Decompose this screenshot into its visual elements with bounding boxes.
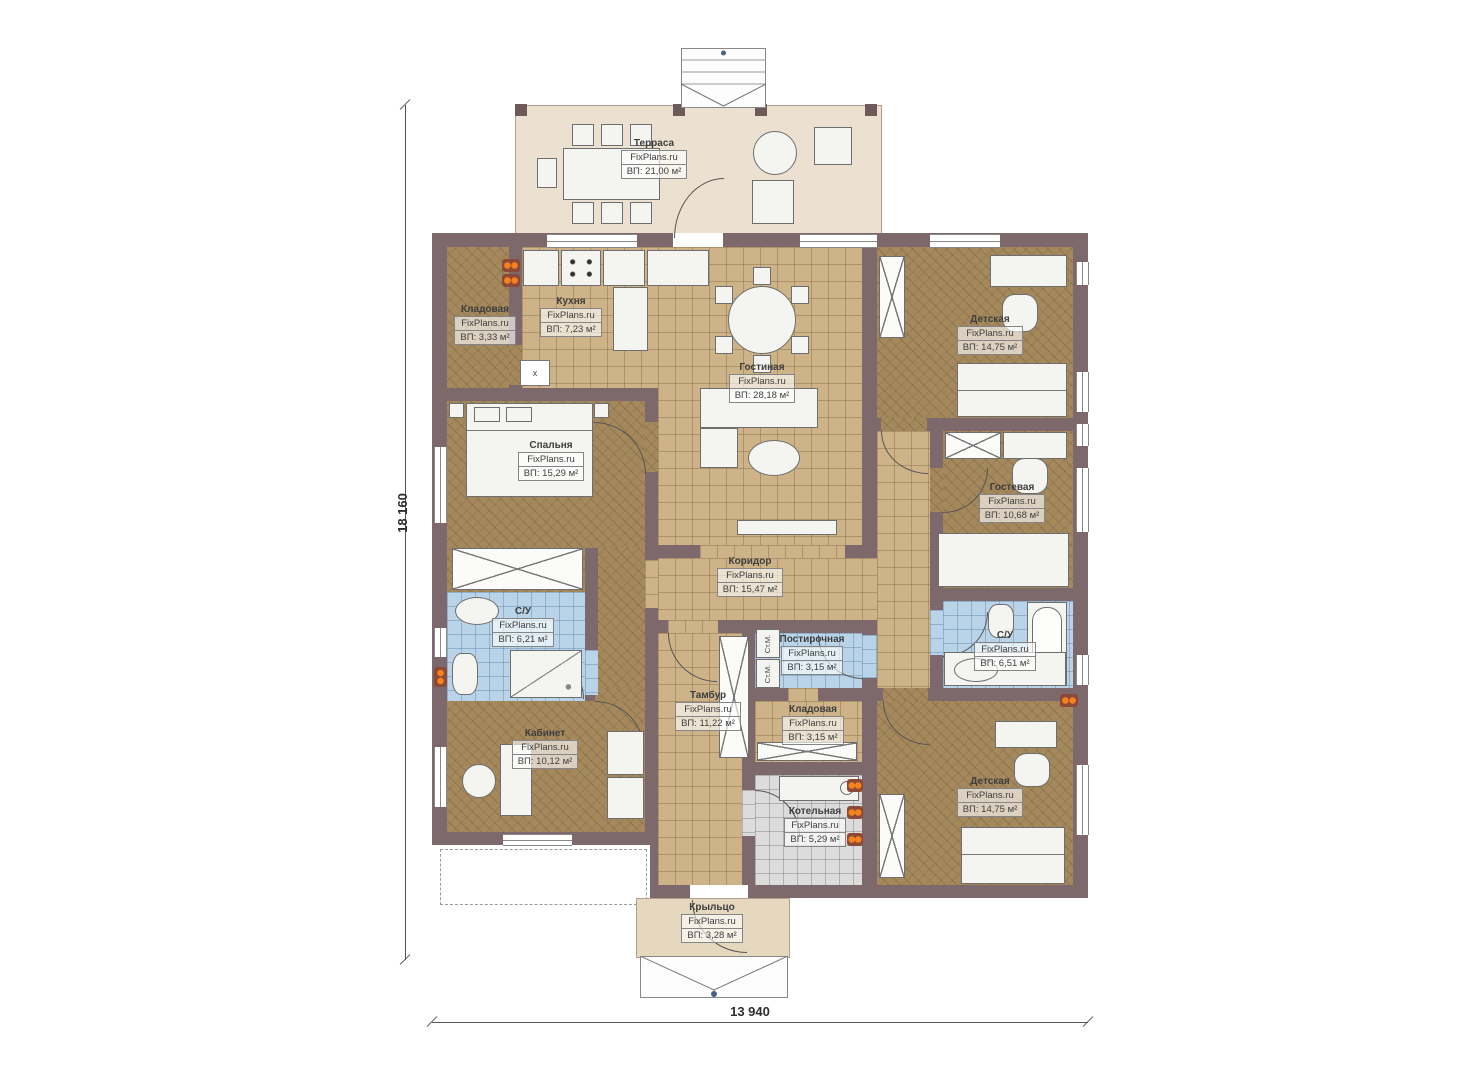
label-guest-room: Гостевая FixPlans.ruВП: 10,68 м² [966, 482, 1058, 523]
terrace-post [865, 104, 877, 116]
wardrobe [452, 548, 583, 590]
opening-vestibule-door [668, 620, 718, 633]
opening-nursery-top-door [881, 418, 927, 431]
room-name: Кабинет [525, 728, 565, 739]
toilet [452, 653, 478, 695]
label-porch: Крыльцо FixPlans.ruВП: 3,28 м² [676, 902, 748, 943]
window [1076, 424, 1089, 446]
hallway-strip-floor [598, 548, 645, 701]
terrace-stairs [681, 48, 766, 108]
side-table [814, 127, 852, 165]
window [434, 747, 447, 807]
room-name: Коридор [728, 556, 771, 567]
window [1076, 262, 1089, 285]
shower [510, 650, 582, 698]
label-bathroom-right: С/У FixPlans.ruВП: 6,51 м² [970, 630, 1040, 671]
label-bedroom: Спальня FixPlans.ruВП: 15,29 м² [505, 440, 597, 481]
sofa-chaise [700, 428, 738, 468]
room-area: ВП: 15,47 м² [718, 583, 783, 596]
opening-bedroom-door [645, 422, 658, 472]
bed [957, 363, 1067, 417]
kitchen-sink [603, 250, 645, 286]
terrace-post [515, 104, 527, 116]
opening-entrance-door [690, 885, 748, 898]
watermark: FixPlans.ru [730, 375, 795, 389]
radiator-icon [502, 259, 520, 272]
radiator-icon [1060, 694, 1078, 707]
watermark: FixPlans.ru [783, 717, 842, 731]
room-name: Детская [970, 314, 1009, 325]
window [434, 628, 447, 657]
opening-storage-bottom-door [788, 688, 818, 701]
room-name: Гостевая [990, 482, 1035, 493]
wardrobe [945, 432, 1001, 459]
room-area: ВП: 5,29 м² [785, 833, 844, 846]
room-name: Гостиная [739, 362, 784, 373]
watermark: FixPlans.ru [958, 327, 1023, 341]
roof-overhang-outline [440, 849, 647, 905]
porch-steps [640, 956, 788, 998]
label-corridor: Коридор FixPlans.ruВП: 15,47 м² [695, 556, 805, 597]
watermark: FixPlans.ru [718, 569, 783, 583]
sofa [938, 533, 1069, 587]
room-name: Кладовая [461, 304, 509, 315]
room-name: Постирочная [780, 634, 845, 645]
chair [537, 158, 557, 188]
tv-console [737, 520, 837, 535]
kitchen-counter [647, 250, 709, 286]
label-living-room: Гостиная FixPlans.ruВП: 28,18 м² [710, 362, 814, 403]
radiator-icon [847, 779, 863, 792]
window [434, 447, 447, 523]
room-area: ВП: 21,00 м² [622, 165, 687, 178]
dining-round-table [728, 286, 796, 354]
desk [995, 721, 1057, 748]
room-area: ВП: 10,68 м² [980, 509, 1045, 522]
watermark: FixPlans.ru [785, 819, 844, 833]
stove [561, 250, 601, 286]
window [1076, 372, 1089, 412]
room-name: Тамбур [690, 690, 726, 701]
label-vestibule: Тамбур FixPlans.ruВП: 11,22 м² [672, 690, 744, 731]
room-name: С/У [515, 606, 531, 617]
window [503, 834, 572, 846]
watermark: FixPlans.ru [980, 495, 1045, 509]
watermark: FixPlans.ru [958, 789, 1023, 803]
office-chair [462, 764, 496, 798]
chair [791, 336, 809, 354]
washing-machine-label: Ст.М. [755, 658, 781, 690]
room-corridor-floor [862, 558, 877, 620]
window [1076, 765, 1089, 835]
storage-x-marker: x [520, 360, 550, 386]
watermark: FixPlans.ru [622, 151, 687, 165]
opening-bathroom-left-door [585, 650, 598, 695]
label-storage-bottom: Кладовая FixPlans.ruВП: 3,15 м² [768, 704, 858, 745]
coffee-table [748, 440, 800, 476]
room-name: Спальня [529, 440, 572, 451]
terrace-table [752, 180, 794, 224]
wardrobe [879, 256, 905, 338]
label-bathroom-left: С/У FixPlans.ruВП: 6,21 м² [487, 606, 559, 647]
window [1076, 655, 1089, 685]
chair [791, 286, 809, 304]
window [547, 234, 637, 248]
room-area: ВП: 11,22 м² [676, 717, 740, 730]
label-terrace: Терраса FixPlans.ruВП: 21,00 м² [592, 138, 716, 179]
watermark: FixPlans.ru [513, 741, 578, 755]
dimension-line-bottom [432, 1022, 1088, 1023]
room-area: ВП: 3,15 м² [782, 661, 841, 674]
opening-hall-corridor [645, 560, 658, 608]
washing-machine-label: Ст.М. [755, 628, 781, 660]
desk [990, 255, 1067, 287]
watermark: FixPlans.ru [455, 317, 514, 331]
chair [601, 202, 623, 224]
room-area: ВП: 7,23 м² [541, 323, 600, 336]
chair [572, 202, 594, 224]
desk [1003, 432, 1067, 459]
opening-bathroom-right-door [930, 610, 943, 655]
round-table [753, 131, 797, 175]
watermark: FixPlans.ru [682, 915, 741, 929]
fridge [523, 250, 559, 286]
opening-laundry-door [862, 635, 877, 678]
nightstand [594, 403, 609, 418]
label-office: Кабинет FixPlans.ruВП: 10,12 м² [500, 728, 590, 769]
room-area: ВП: 10,12 м² [513, 755, 578, 768]
dimension-width-label: 13 940 [710, 1004, 790, 1020]
radiator-icon [434, 667, 447, 687]
room-area: ВП: 28,18 м² [730, 389, 795, 402]
room-area: ВП: 14,75 м² [958, 803, 1023, 816]
label-kitchen: Кухня FixPlans.ruВП: 7,23 м² [528, 296, 614, 337]
window [930, 234, 1000, 248]
room-name: Кладовая [789, 704, 837, 715]
label-nursery-top: Детская FixPlans.ruВП: 14,75 м² [938, 314, 1042, 355]
pillow [474, 407, 500, 422]
room-name: Терраса [634, 138, 674, 149]
wardrobe [879, 794, 905, 878]
room-area: ВП: 6,51 м² [975, 657, 1034, 670]
floor-plan-page: Терраса FixPlans.ruВП: 21,00 м² Кладовая… [0, 0, 1474, 1080]
watermark: FixPlans.ru [519, 453, 584, 467]
label-storage-top: Кладовая FixPlans.ruВП: 3,33 м² [444, 304, 526, 345]
opening-office-door [595, 688, 643, 701]
watermark: FixPlans.ru [782, 647, 841, 661]
room-area: ВП: 14,75 м² [958, 341, 1023, 354]
radiator-icon [502, 274, 520, 287]
window [800, 234, 877, 248]
shelf [607, 731, 644, 775]
room-area: ВП: 3,33 м² [455, 331, 514, 344]
room-area: ВП: 3,28 м² [682, 929, 741, 942]
room-area: ВП: 3,15 м² [783, 731, 842, 744]
room-name: С/У [997, 630, 1013, 641]
chair [753, 267, 771, 285]
shelf [607, 777, 644, 819]
room-name: Кухня [556, 296, 585, 307]
watermark: FixPlans.ru [541, 309, 600, 323]
room-name: Крыльцо [689, 902, 735, 913]
bed [961, 827, 1065, 884]
kitchen-cabinet [613, 287, 648, 351]
watermark: FixPlans.ru [676, 703, 740, 717]
opening-boiler-door [742, 790, 755, 836]
window [1076, 468, 1089, 532]
dimension-height-label: 18 160 [395, 478, 411, 548]
nightstand [449, 403, 464, 418]
chair [715, 336, 733, 354]
label-boiler-room: Котельная FixPlans.ruВП: 5,29 м² [772, 806, 858, 847]
chair [715, 286, 733, 304]
room-name: Детская [970, 776, 1009, 787]
label-nursery-bottom: Детская FixPlans.ruВП: 14,75 м² [938, 776, 1042, 817]
room-area: ВП: 15,29 м² [519, 467, 584, 480]
pillow [506, 407, 532, 422]
opening-nursery-bottom-door [883, 688, 928, 701]
watermark: FixPlans.ru [493, 619, 552, 633]
watermark: FixPlans.ru [975, 643, 1034, 657]
room-name: Котельная [789, 806, 841, 817]
chair [572, 124, 594, 146]
room-area: ВП: 6,21 м² [493, 633, 552, 646]
chair [630, 202, 652, 224]
opening-guest-door [930, 468, 943, 512]
